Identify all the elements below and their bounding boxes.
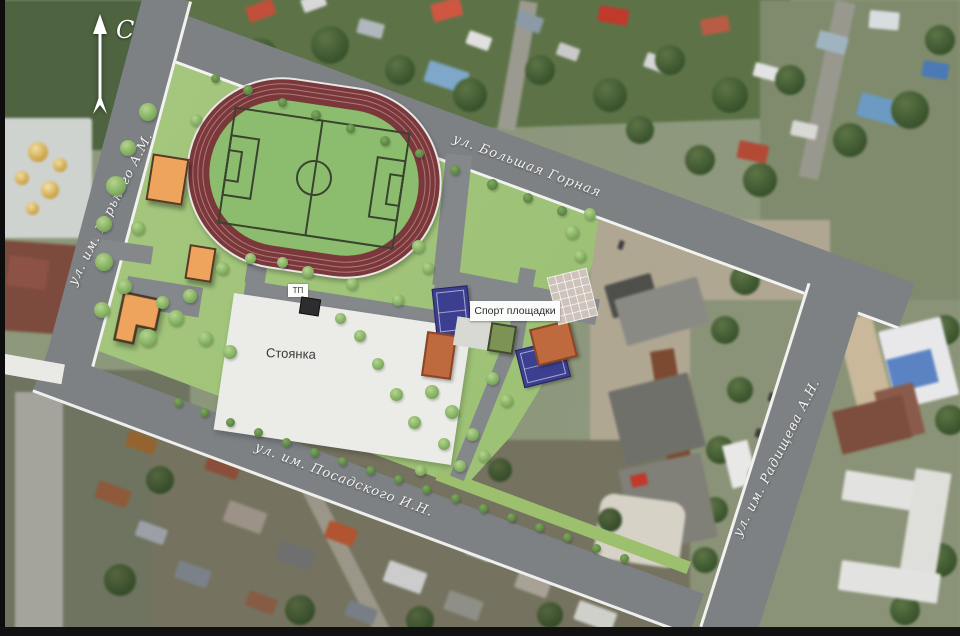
plan-bush [338, 457, 347, 466]
plan-tree [486, 372, 499, 385]
plan-bush [226, 418, 235, 427]
plan-tree [139, 329, 157, 347]
plan-tree [574, 250, 586, 262]
plan-tree [190, 114, 202, 126]
plan-tree [223, 345, 237, 359]
plan-bush [282, 438, 291, 447]
plan-tree [302, 266, 314, 278]
plan-tree [408, 416, 421, 429]
plan-bush [200, 408, 209, 417]
plan-tree [565, 225, 579, 239]
plan-tree [156, 296, 169, 309]
plan-bush [211, 74, 220, 83]
plan-bush [310, 448, 319, 457]
plan-tree [216, 262, 229, 275]
plan-bush [366, 466, 375, 475]
plan-tree [500, 394, 513, 407]
plan-tree [412, 240, 425, 253]
plan-bush [278, 98, 287, 107]
plan-tree [354, 330, 366, 342]
plan-bush [415, 149, 424, 158]
plan-tree [454, 460, 466, 472]
plan-bush [535, 523, 544, 532]
plan-tree [445, 405, 459, 419]
plan-tree [120, 140, 136, 156]
plan-tree [392, 294, 404, 306]
plan-tree [131, 221, 145, 235]
plan-tree [425, 385, 439, 399]
plan-tree [106, 176, 126, 196]
site-plan-map: Стоянка ТП Спорт площадки ул. им. Горько… [0, 0, 960, 636]
plan-tree [390, 388, 403, 401]
plan-tree [117, 279, 132, 294]
plan-tree [466, 428, 479, 441]
plan-bush [620, 554, 629, 563]
plan-tree [584, 208, 596, 220]
plan-bush [507, 513, 516, 522]
plan-tree [277, 257, 288, 268]
plan-tree [96, 216, 112, 232]
compass: С [84, 6, 154, 116]
frame-bottom [0, 627, 960, 636]
plan-tree [335, 313, 346, 324]
plan-tree [372, 358, 384, 370]
plan-bush [451, 494, 460, 503]
plan-tree [478, 450, 490, 462]
north-label: С [116, 16, 134, 44]
plan-bush [243, 85, 253, 95]
plan-bush [422, 485, 431, 494]
plan-bush [592, 544, 601, 553]
plan-tree [415, 465, 426, 476]
plan-bush [254, 428, 263, 437]
plan-tree [245, 253, 256, 264]
plan-bush [394, 475, 403, 484]
plan-tree [168, 310, 184, 326]
plan-tree [438, 438, 450, 450]
plan-bush [346, 124, 355, 133]
plan-bush [479, 504, 488, 513]
plan-tree [422, 262, 434, 274]
plan-tree [95, 253, 113, 271]
plan-bush [563, 533, 572, 542]
plan-bush [523, 193, 533, 203]
plan-bush [557, 206, 567, 216]
plan-tree [94, 302, 110, 318]
plan-bush [380, 136, 390, 146]
plan-bush [311, 110, 321, 120]
plan-tree [346, 278, 358, 290]
plan-bush [174, 398, 183, 407]
plan-bush [487, 179, 498, 190]
plan-tree [183, 289, 197, 303]
frame-left [0, 0, 5, 636]
plan-bush [450, 165, 460, 175]
plan-tree [198, 331, 213, 346]
